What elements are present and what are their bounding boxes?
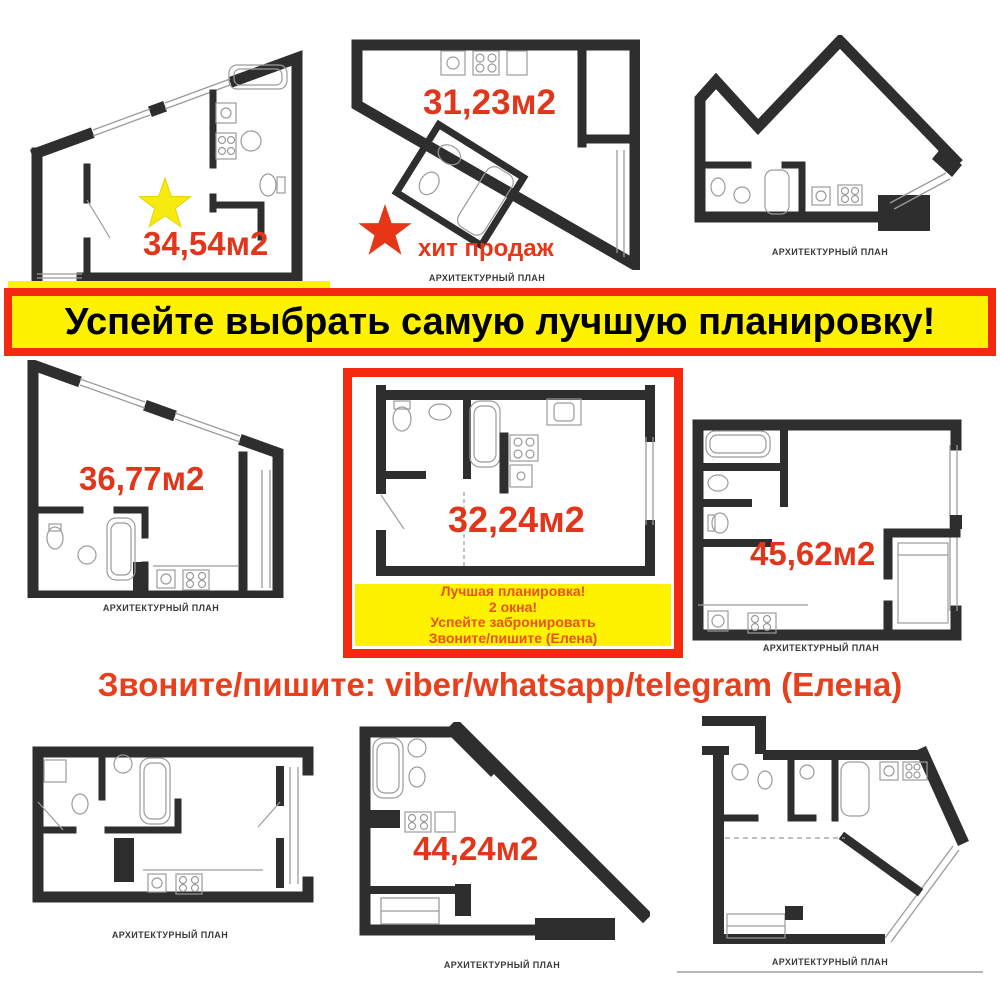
floorplan-middle-left: 36,77м2 АРХИТЕКТУРНЫЙ ПЛАН xyxy=(25,360,295,615)
floorplan-drawing xyxy=(690,35,970,240)
floorplan-top-middle: 31,23м2 хит продаж АРХИТЕКТУРНЫЙ ПЛАН xyxy=(345,35,640,290)
hit-sales-badge: хит продаж xyxy=(418,235,554,263)
plan-caption: АРХИТЕКТУРНЫЙ ПЛАН xyxy=(61,603,261,613)
promo-banner: Успейте выбрать самую лучшую планировку! xyxy=(4,288,996,356)
red-star-icon xyxy=(358,204,411,255)
promo-line: Успейте забронировать xyxy=(430,615,595,631)
yellow-star-icon xyxy=(139,178,190,227)
area-label: 44,24м2 xyxy=(413,830,538,868)
area-label: 36,77м2 xyxy=(79,460,204,498)
area-label: 45,62м2 xyxy=(750,535,875,573)
plan-caption: АРХИТЕКТУРНЫЙ ПЛАН xyxy=(402,960,602,970)
area-label: 34,54м2 xyxy=(143,225,268,263)
floorplan-top-right: АРХИТЕКТУРНЫЙ ПЛАН xyxy=(690,35,970,260)
promo-banner-text: Успейте выбрать самую лучшую планировку! xyxy=(65,301,936,344)
promo-line: Звоните/пишите (Елена) xyxy=(429,631,598,647)
plan-caption: АРХИТЕКТУРНЫЙ ПЛАН xyxy=(730,247,930,257)
floorplan-bottom-right: АРХИТЕКТУРНЫЙ ПЛАН xyxy=(695,710,972,965)
floorplan-drawing xyxy=(352,377,674,577)
floorplan-bottom-middle: 44,24м2 АРХИТЕКТУРНЫЙ ПЛАН xyxy=(355,722,650,972)
floorplan-middle-right: 45,62м2 АРХИТЕКТУРНЫЙ ПЛАН xyxy=(688,415,965,660)
area-label: 31,23м2 xyxy=(423,83,556,123)
plan-caption: АРХИТЕКТУРНЫЙ ПЛАН xyxy=(387,273,587,283)
flyer-canvas: 34,54м2 31,23м2 хит продаж АРХИТЕКТУРНЫЙ… xyxy=(0,0,1000,1000)
floorplan-drawing xyxy=(688,415,965,645)
floorplan-drawing xyxy=(28,742,318,907)
promo-line: Лучшая планировка! xyxy=(441,584,586,600)
floorplan-middle-center-frame: 32,24м2 Лучшая планировка! 2 окна! Успей… xyxy=(343,368,683,658)
plan-caption: АРХИТЕКТУРНЫЙ ПЛАН xyxy=(721,643,921,653)
promo-note: Лучшая планировка! 2 окна! Успейте забро… xyxy=(355,584,671,646)
separator-line xyxy=(677,971,983,973)
floorplan-top-left: 34,54м2 xyxy=(25,45,310,290)
area-label: 32,24м2 xyxy=(448,499,585,541)
plan-caption: АРХИТЕКТУРНЫЙ ПЛАН xyxy=(730,957,930,967)
promo-line: 2 окна! xyxy=(489,600,537,616)
plan-caption: АРХИТЕКТУРНЫЙ ПЛАН xyxy=(70,930,270,940)
floorplan-bottom-left: АРХИТЕКТУРНЫЙ ПЛАН xyxy=(28,742,318,947)
contact-line: Звоните/пишите: viber/whatsapp/telegram … xyxy=(0,666,1000,704)
floorplan-drawing xyxy=(695,710,972,952)
